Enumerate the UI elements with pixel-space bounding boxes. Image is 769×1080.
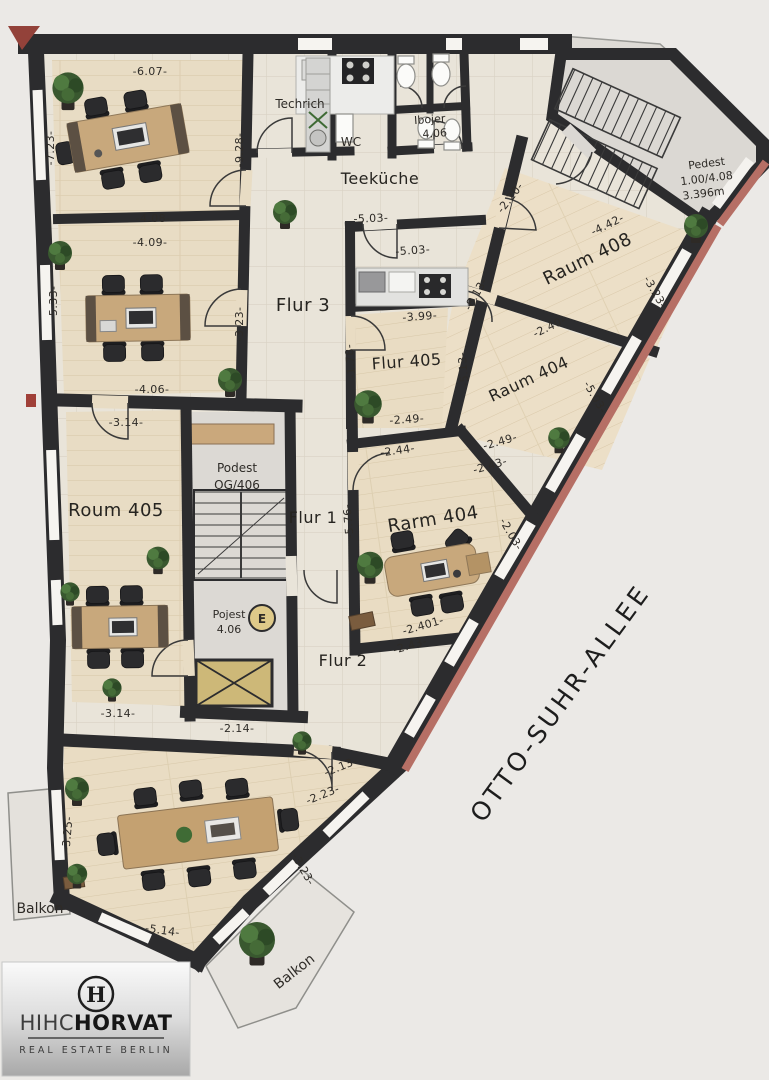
kitchenette-unit: [356, 268, 468, 306]
dim: -3.14-: [109, 416, 144, 429]
label-pojest-1: Pojest: [213, 608, 247, 621]
label-wc: WC: [341, 135, 361, 149]
dim: -3.23-: [233, 307, 246, 342]
dim: -4.09-: [133, 236, 168, 249]
label-roum405: Roum 405: [68, 500, 164, 521]
label-technik: Techrich: [274, 97, 324, 111]
logo-tagline: REAL ESTATE BERLIN: [19, 1045, 172, 1056]
label-foyer-value: 4.06: [422, 126, 447, 141]
dim: -2.14-: [220, 722, 255, 735]
dim: -6.07-: [133, 65, 168, 78]
label-podest-2: OG/406: [214, 478, 260, 492]
dim: -9.28-: [233, 133, 246, 168]
logo-card: H HIHCHORVAT REAL ESTATE BERLIN: [2, 962, 190, 1076]
label-balkon-left: Balkon: [16, 901, 63, 917]
elevator: [196, 660, 272, 706]
logo-monogram: H: [86, 982, 106, 1007]
logo-brand-light: HIHC: [20, 1011, 74, 1035]
dim: -4.06-: [135, 383, 170, 396]
label-elevator-e: E: [258, 612, 266, 626]
dim: -5.03-: [353, 211, 388, 225]
label-podest-1: Podest: [217, 461, 257, 475]
logo-brand-bold: HORVAT: [74, 1011, 173, 1035]
logo-brand: HIHCHORVAT: [20, 1011, 173, 1035]
dim: -5.03-: [395, 243, 431, 258]
label-flur1: Flur 1: [289, 508, 338, 527]
dim: -4.08-: [136, 212, 171, 225]
label-flur2: Flur 2: [319, 651, 368, 670]
label-foyer: Ibojer: [414, 112, 447, 127]
floor-plan: Techrich WC Ibojer 4.06 Teeküche Flur 3 …: [0, 0, 769, 1080]
label-teekueche: Teeküche: [340, 169, 419, 188]
floor-plan-page: Techrich WC Ibojer 4.06 Teeküche Flur 3 …: [0, 0, 769, 1080]
dim: -3.99-: [402, 309, 438, 324]
label-flur3: Flur 3: [276, 295, 330, 316]
dim: -2.49-: [389, 412, 425, 427]
label-pojest-2: 4.06: [217, 623, 242, 636]
dim: -5.33-: [47, 286, 60, 321]
dim: -7.23-: [44, 131, 57, 166]
dim: -3.14-: [101, 707, 136, 720]
